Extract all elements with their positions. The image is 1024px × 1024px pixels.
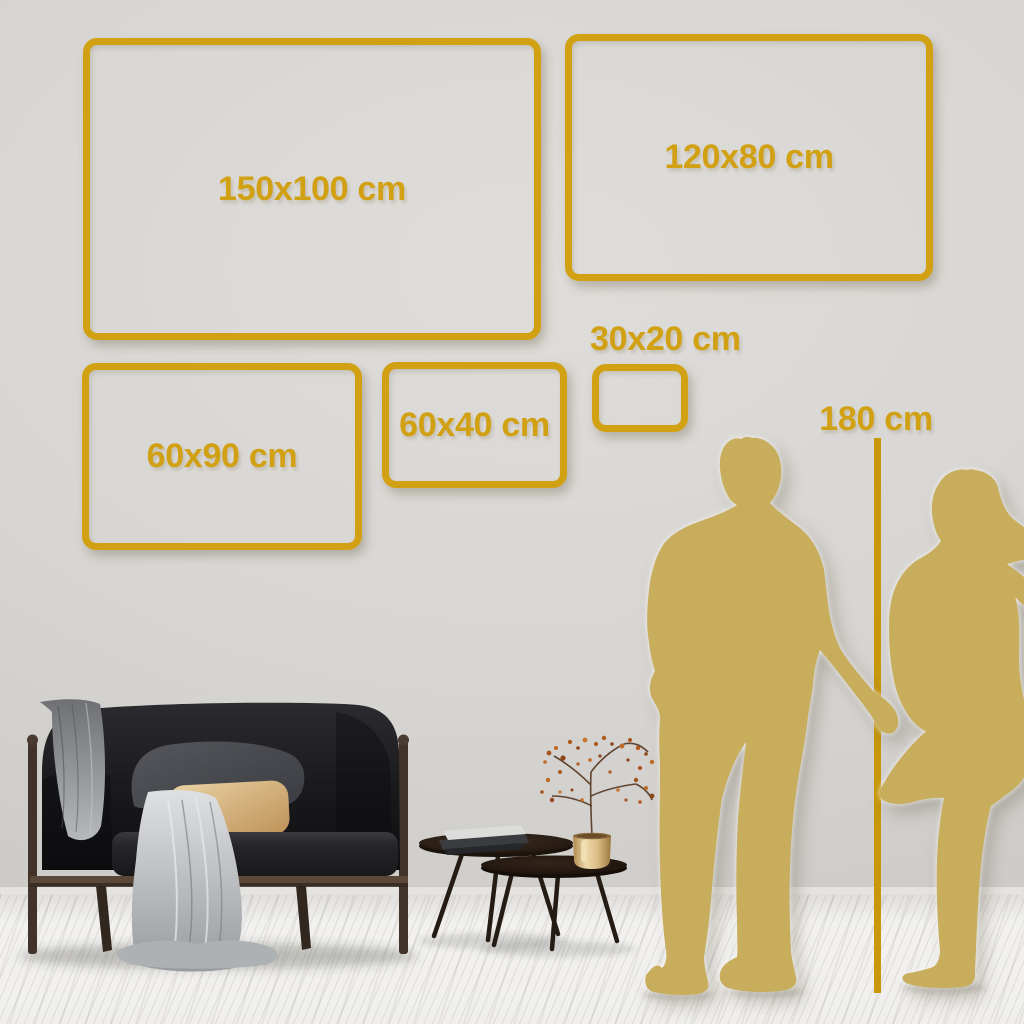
couple-silhouette: [642, 437, 1024, 1000]
size-frame-120x80: 120x80 cm: [565, 34, 933, 281]
sofa-wood-post: [28, 740, 37, 954]
size-label-60x90: 60x90 cm: [147, 437, 298, 476]
woman-silhouette: [880, 469, 1024, 988]
height-marker-label: 180 cm: [819, 400, 933, 439]
sofa-wood-post: [399, 740, 408, 954]
man-silhouette: [645, 437, 898, 995]
size-frame-60x40: 60x40 cm: [382, 362, 567, 488]
coffee-tables: [418, 736, 654, 957]
size-guide-scene: 150x100 cm 120x80 cm 60x90 cm 60x40 cm 3…: [0, 0, 1024, 1024]
dried-branch: [552, 743, 652, 836]
size-frame-60x90: 60x90 cm: [82, 363, 362, 550]
size-frame-150x100: 150x100 cm: [83, 38, 541, 340]
size-frame-30x20: [592, 364, 688, 432]
size-label-60x40: 60x40 cm: [399, 406, 550, 445]
size-label-150x100: 150x100 cm: [218, 170, 406, 209]
size-label-30x20: 30x20 cm: [590, 320, 741, 359]
gold-vase: [573, 833, 611, 869]
sofa: [18, 699, 418, 971]
size-label-120x80: 120x80 cm: [664, 138, 833, 177]
